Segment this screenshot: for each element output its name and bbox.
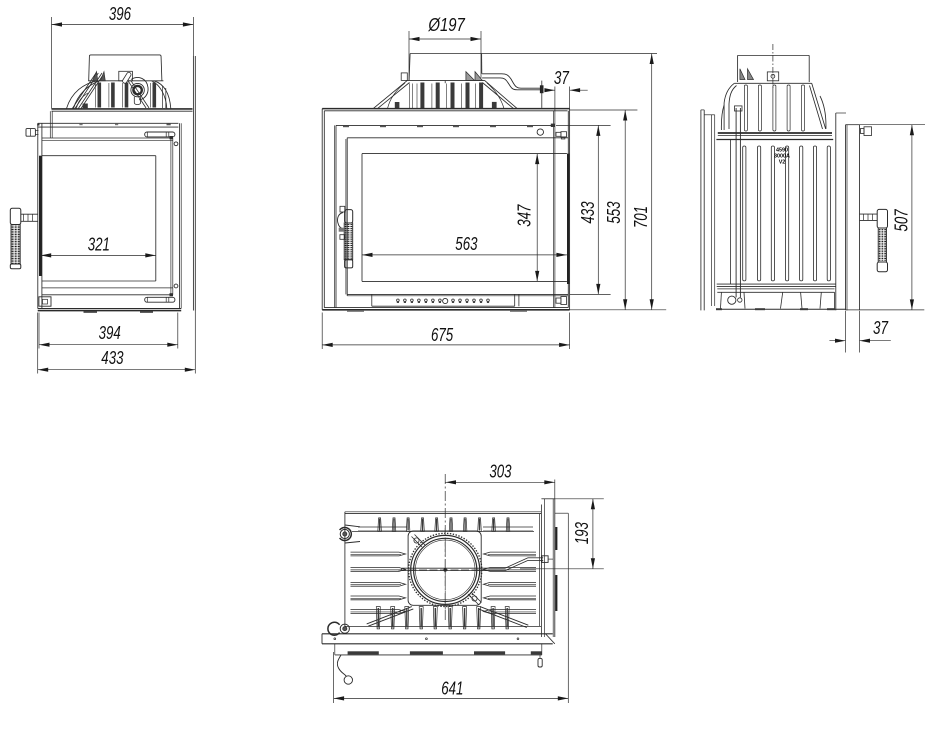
svg-text:433: 433 xyxy=(578,201,598,223)
svg-text:701: 701 xyxy=(631,206,651,228)
svg-text:321: 321 xyxy=(88,234,110,254)
svg-text:Ø197: Ø197 xyxy=(428,15,466,35)
svg-text:303: 303 xyxy=(489,461,511,481)
svg-text:641: 641 xyxy=(441,678,463,698)
svg-text:507: 507 xyxy=(892,209,912,232)
svg-text:394: 394 xyxy=(99,323,121,343)
svg-text:553: 553 xyxy=(604,201,624,223)
svg-text:V2: V2 xyxy=(779,160,786,166)
svg-text:433: 433 xyxy=(101,348,123,368)
svg-text:347: 347 xyxy=(514,204,534,227)
svg-text:193: 193 xyxy=(572,522,592,544)
svg-text:675: 675 xyxy=(431,325,454,345)
svg-text:563: 563 xyxy=(455,234,477,254)
svg-text:37: 37 xyxy=(554,68,570,88)
svg-text:37: 37 xyxy=(873,318,889,338)
svg-text:396: 396 xyxy=(109,4,132,24)
